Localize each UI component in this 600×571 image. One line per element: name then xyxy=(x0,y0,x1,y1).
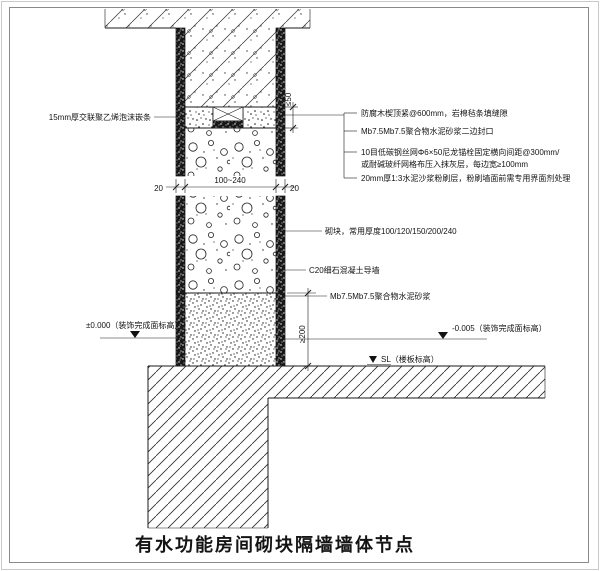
block-wall xyxy=(176,128,285,366)
dim-curb-height: ≥200 xyxy=(298,325,307,343)
rockwool-strip xyxy=(213,121,243,128)
top-slab-hatch xyxy=(105,9,310,28)
level-mark-left: ±0.000（装饰完成面标高） xyxy=(86,320,182,338)
level-mark-slab: SL（楼板标高） xyxy=(367,354,439,365)
label-block: 砌块，常用厚度100/120/150/200/240 xyxy=(325,226,457,236)
block-wall-upper xyxy=(185,128,276,176)
label-pe-strip: 15mm厚交联聚乙烯泡沫嵌条 xyxy=(49,112,151,122)
sheet-outer-border xyxy=(2,2,599,570)
level-mark-right: -0.005（装饰完成面标高） xyxy=(285,323,547,339)
bottom-slab xyxy=(148,366,545,528)
beam-hatch xyxy=(185,28,276,107)
plaster-strip-upper-left xyxy=(176,28,185,176)
label-mortar-seal: Mb7.5Mb7.5聚合物水泥砂浆二边封口 xyxy=(361,126,493,136)
level-right-label: -0.005（装饰完成面标高） xyxy=(452,323,547,333)
level-left-triangle-icon xyxy=(130,331,140,338)
dim-wall-width: 100~240 xyxy=(214,176,246,185)
dim-plaster-left: 20 xyxy=(154,184,163,193)
joint-mortar-left xyxy=(185,107,213,128)
joint-mortar-right xyxy=(243,107,276,128)
dimension-head-gap: ≤50 xyxy=(284,92,298,133)
level-slab-triangle-icon xyxy=(369,356,377,363)
concrete-curb xyxy=(185,293,276,366)
sheet-inner-border xyxy=(10,8,589,563)
slab-downstand-hatch xyxy=(148,398,268,528)
label-wood-wedge: 防腐木楔顶紧@600mm，岩棉毡条填缝隙 xyxy=(361,108,508,118)
drawing-title: 有水功能房间砌块隔墙墙体节点 xyxy=(135,534,415,555)
level-left-label: ±0.000（装饰完成面标高） xyxy=(86,320,182,330)
annotation-mortar: Mb7.5Mb7.5聚合物水泥砂浆 xyxy=(283,291,430,301)
wood-wedge xyxy=(213,107,243,121)
block-wall-lower xyxy=(185,196,276,293)
plaster-strip-lower-right xyxy=(276,196,285,366)
bottom-slab-hatch xyxy=(148,366,545,398)
plaster-strip-lower-left xyxy=(176,196,185,366)
annotation-curb: C20细石混凝土导墙 xyxy=(283,265,380,275)
dim-plaster-right: 20 xyxy=(290,184,299,193)
wall-head-joint xyxy=(185,107,276,128)
dimension-wall-width: 20 100~240 20 xyxy=(154,176,299,193)
label-steel-mesh-line1: 10目低碳钢丝网Φ6×50尼龙锚栓固定横向间距@300mm/ xyxy=(361,147,560,157)
label-curb: C20细石混凝土导墙 xyxy=(309,265,380,275)
annotation-ladder-right: 防腐木楔顶紧@600mm，岩棉毡条填缝隙 Mb7.5Mb7.5聚合物水泥砂浆二边… xyxy=(280,108,570,183)
detail-drawing-canvas: 20 100~240 20 ≤50 ≥200 15mm厚交联聚乙烯泡沫嵌条 防腐… xyxy=(0,0,600,571)
annotation-pe-strip: 15mm厚交联聚乙烯泡沫嵌条 xyxy=(49,112,181,122)
label-steel-mesh-line2: 或耐碱玻纤网格布压入抹灰层，每边宽≥100mm xyxy=(361,159,528,169)
cad-detail-page: 20 100~240 20 ≤50 ≥200 15mm厚交联聚乙烯泡沫嵌条 防腐… xyxy=(0,0,600,571)
annotation-block: 砌块，常用厚度100/120/150/200/240 xyxy=(281,226,457,236)
level-right-triangle-icon xyxy=(438,332,448,339)
label-mortar: Mb7.5Mb7.5聚合物水泥砂浆 xyxy=(330,291,430,301)
dim-head-gap: ≤50 xyxy=(284,92,293,106)
level-slab-label: SL（楼板标高） xyxy=(381,354,439,364)
dimension-curb-height: ≥200 xyxy=(287,288,316,371)
label-plaster-layer: 20mm厚1:3水泥沙浆粉刷层，粉刷墙面前需专用界面剂处理 xyxy=(361,173,570,183)
